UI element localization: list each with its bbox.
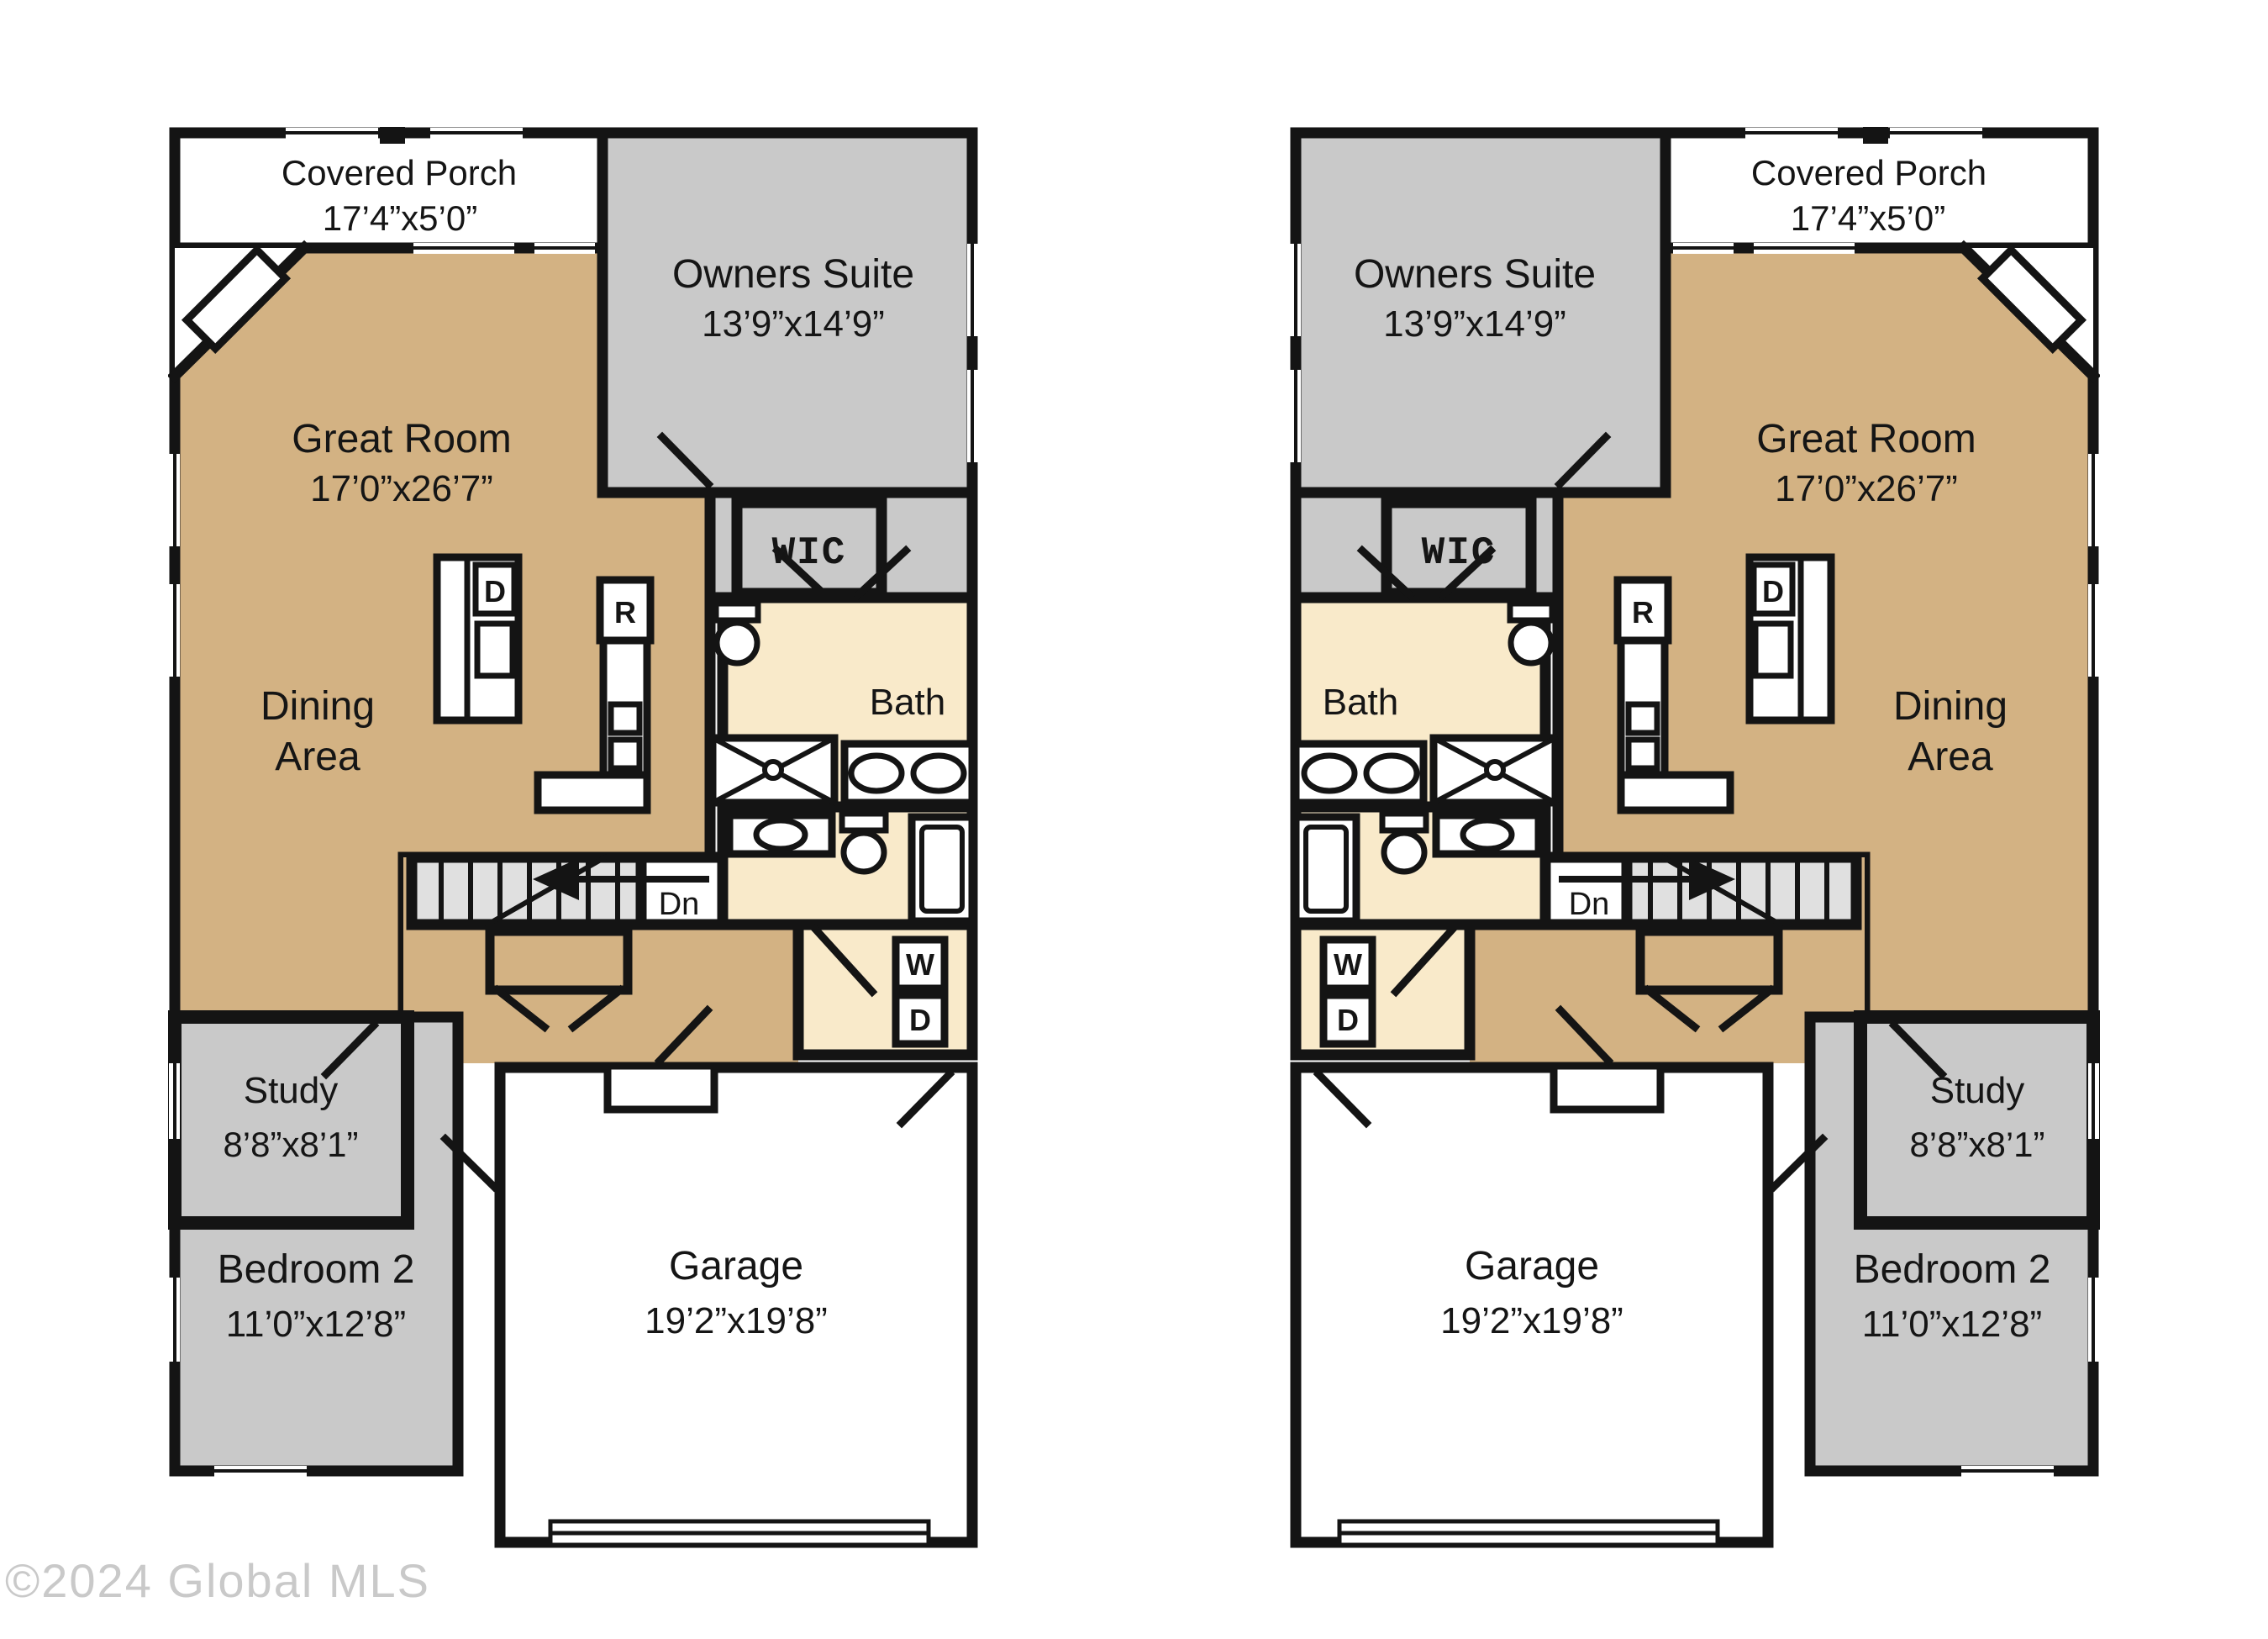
copyright-watermark: ©2024 Global MLS xyxy=(5,1553,430,1608)
room-label-dining-2: Area xyxy=(275,735,360,779)
stairs-dn-label: Dn xyxy=(1569,887,1610,922)
room-label-garage: Garage xyxy=(1465,1244,1599,1289)
room-dims-bedroom-2: 11’0”x12’8” xyxy=(226,1304,406,1345)
washer-label: W xyxy=(1334,947,1362,982)
range-label: R xyxy=(614,595,636,630)
room-dims-covered-porch: 17’4”x5’0” xyxy=(1791,198,1945,238)
room-label-great-room: Great Room xyxy=(292,417,511,461)
dishwasher-label: D xyxy=(484,574,506,609)
dryer-label: D xyxy=(1337,1003,1359,1037)
room-dims-great-room: 17’0”x26’7” xyxy=(1775,468,1958,509)
dryer-label: D xyxy=(909,1003,931,1037)
range-label: R xyxy=(1632,595,1654,630)
room-label-study: Study xyxy=(244,1070,339,1111)
room-dims-covered-porch: 17’4”x5’0” xyxy=(323,198,477,238)
room-dims-owners-suite: 13’9”x14’9” xyxy=(1383,303,1566,345)
room-label-dining: Dining xyxy=(1893,684,2008,729)
room-dims-garage: 19’2”x19’8” xyxy=(645,1300,828,1341)
room-label-owners-suite: Owners Suite xyxy=(1354,252,1596,297)
room-dims-bedroom-2: 11’0”x12’8” xyxy=(1862,1304,2042,1345)
room-label-wic: WIC xyxy=(1422,531,1497,575)
room-label-dining-2: Area xyxy=(1908,735,1993,779)
floor-plan-unit-left: Covered Porch 17’4”x5’0” Owners Suite 13… xyxy=(168,126,979,1551)
room-label-bath: Bath xyxy=(1323,682,1399,723)
room-label-great-room: Great Room xyxy=(1756,417,1976,461)
stairs-dn-label: Dn xyxy=(659,887,700,922)
floor-plan-page: Covered Porch 17’4”x5’0” Owners Suite 13… xyxy=(0,0,2268,1639)
room-dims-study: 8’8”x8’1” xyxy=(223,1125,358,1164)
dishwasher-label: D xyxy=(1762,574,1784,609)
room-label-bath: Bath xyxy=(870,682,946,723)
room-label-bedroom-2: Bedroom 2 xyxy=(218,1247,415,1292)
room-dims-study: 8’8”x8’1” xyxy=(1909,1125,2044,1164)
room-dims-garage: 19’2”x19’8” xyxy=(1440,1300,1623,1341)
washer-label: W xyxy=(906,947,934,982)
room-label-covered-porch: Covered Porch xyxy=(1751,153,1986,192)
room-label-dining: Dining xyxy=(260,684,375,729)
room-label-owners-suite: Owners Suite xyxy=(672,252,914,297)
room-dims-owners-suite: 13’9”x14’9” xyxy=(702,303,885,345)
room-label-study: Study xyxy=(1930,1070,2025,1111)
room-label-wic: WIC xyxy=(772,531,847,575)
room-label-bedroom-2: Bedroom 2 xyxy=(1854,1247,2051,1292)
room-label-covered-porch: Covered Porch xyxy=(282,153,517,192)
room-label-garage: Garage xyxy=(669,1244,803,1289)
floor-plan-unit-right: Covered Porch 17’4”x5’0” Owners Suite 13… xyxy=(1289,126,2100,1551)
room-dims-great-room: 17’0”x26’7” xyxy=(310,468,493,509)
